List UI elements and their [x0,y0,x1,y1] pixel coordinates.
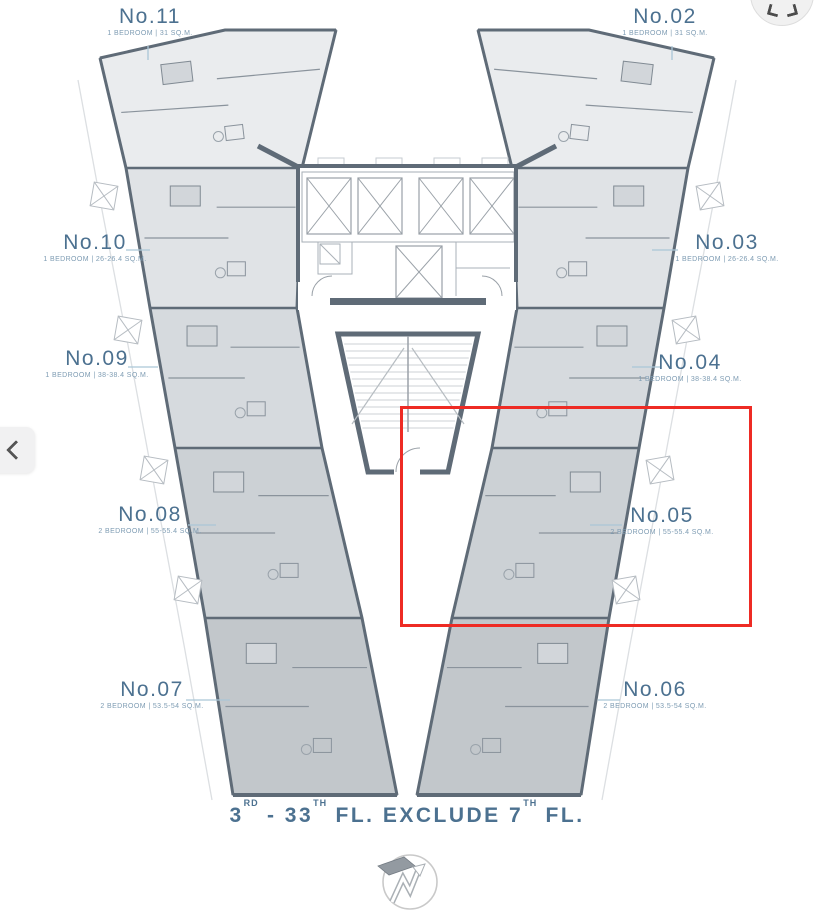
double-chevron-down-icon [766,4,779,17]
north-arrow-icon [374,848,446,915]
prev-slide-button[interactable] [0,427,35,473]
chevron-left-icon [6,440,26,460]
highlight-box-no-05 [400,406,752,627]
floor-range-text: 3RD - 33TH FL. EXCLUDE 7TH FL. [0,804,814,828]
double-chevron-down-icon [784,4,797,17]
